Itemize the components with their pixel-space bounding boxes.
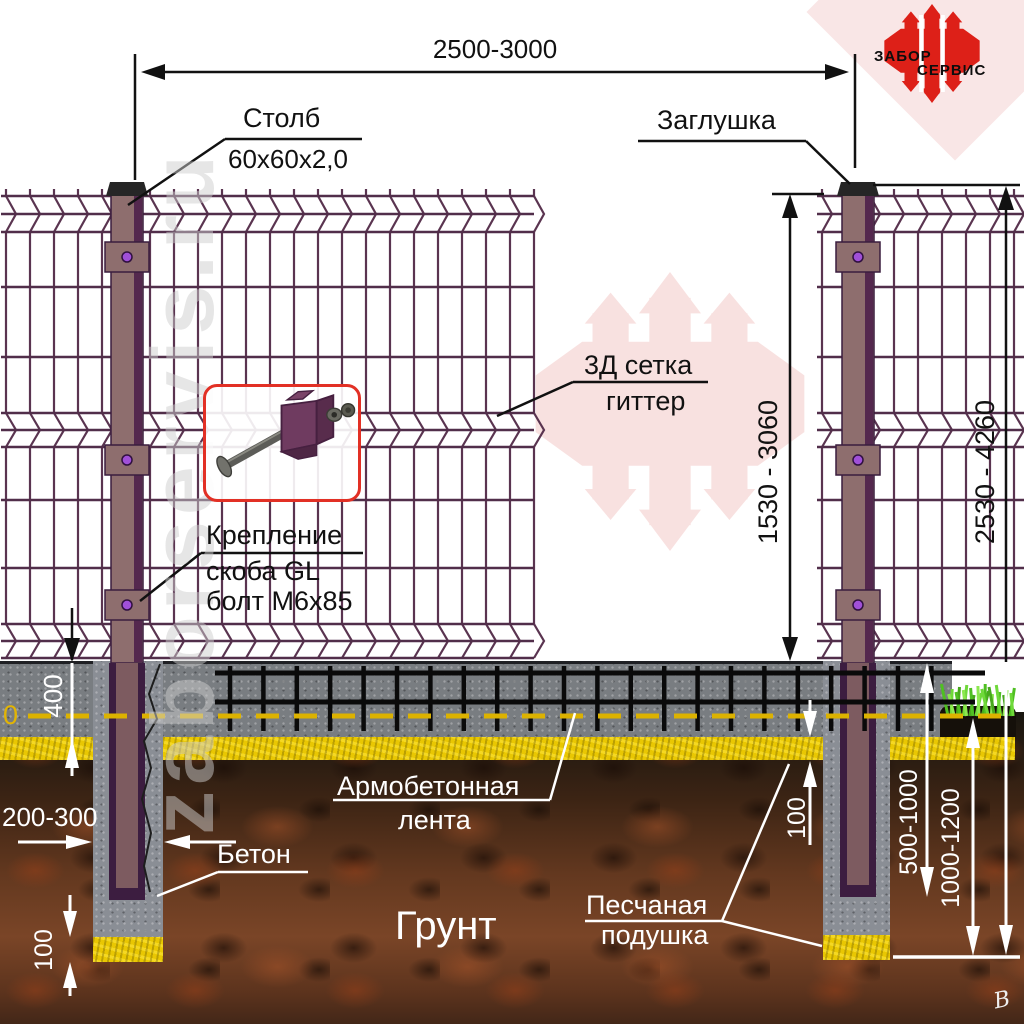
bracket-label-line2: скоба GL [206, 557, 320, 585]
post-size-label: 60x60x2,0 [228, 146, 348, 173]
dim-pillar-width-label: 200-300 [2, 804, 97, 831]
bracket-bolt-illustration [206, 387, 357, 498]
post-label: Столб [243, 104, 320, 132]
sand-label-line2: подушка [601, 921, 708, 949]
sand-label-line1: Песчаная [586, 891, 707, 919]
dim-post-embed-label: 500-1000 [894, 722, 924, 922]
strip-label-line1: Армобетонная [337, 772, 519, 800]
logo-text-line2: СЕРВИС [917, 62, 986, 79]
soil-label: Грунт [395, 905, 497, 947]
fence-installation-diagram: zaborservis.ru ЗАБОР СЕРВИС 2500-3000 Ст… [0, 0, 1024, 1024]
zero-level-label: 0 [3, 701, 18, 729]
cap-label: Заглушка [657, 106, 776, 134]
strip-label-line2: лента [398, 806, 471, 834]
mesh-label-line1: 3Д сетка [584, 351, 692, 379]
dim-pit-depth-label: 1000-1200 [936, 748, 966, 948]
dim-sand-layer-label: 100 [782, 718, 812, 918]
mesh-label-line2: гиттер [606, 387, 685, 415]
dim-post-height-label: 2530 - 4260 [970, 372, 1000, 572]
dim-span-label: 2500-3000 [395, 36, 595, 63]
bracket-label-line1: Крепление [206, 521, 342, 549]
dim-sand-pad-label: 100 [29, 850, 59, 1024]
dim-mesh-height-label: 1530 - 3060 [753, 372, 783, 572]
bracket-label-line3: болт М6х85 [206, 587, 353, 615]
bracket-detail-inset [203, 384, 361, 502]
concrete-label: Бетон [217, 840, 291, 868]
dim-strip-depth-label: 400 [39, 596, 69, 796]
